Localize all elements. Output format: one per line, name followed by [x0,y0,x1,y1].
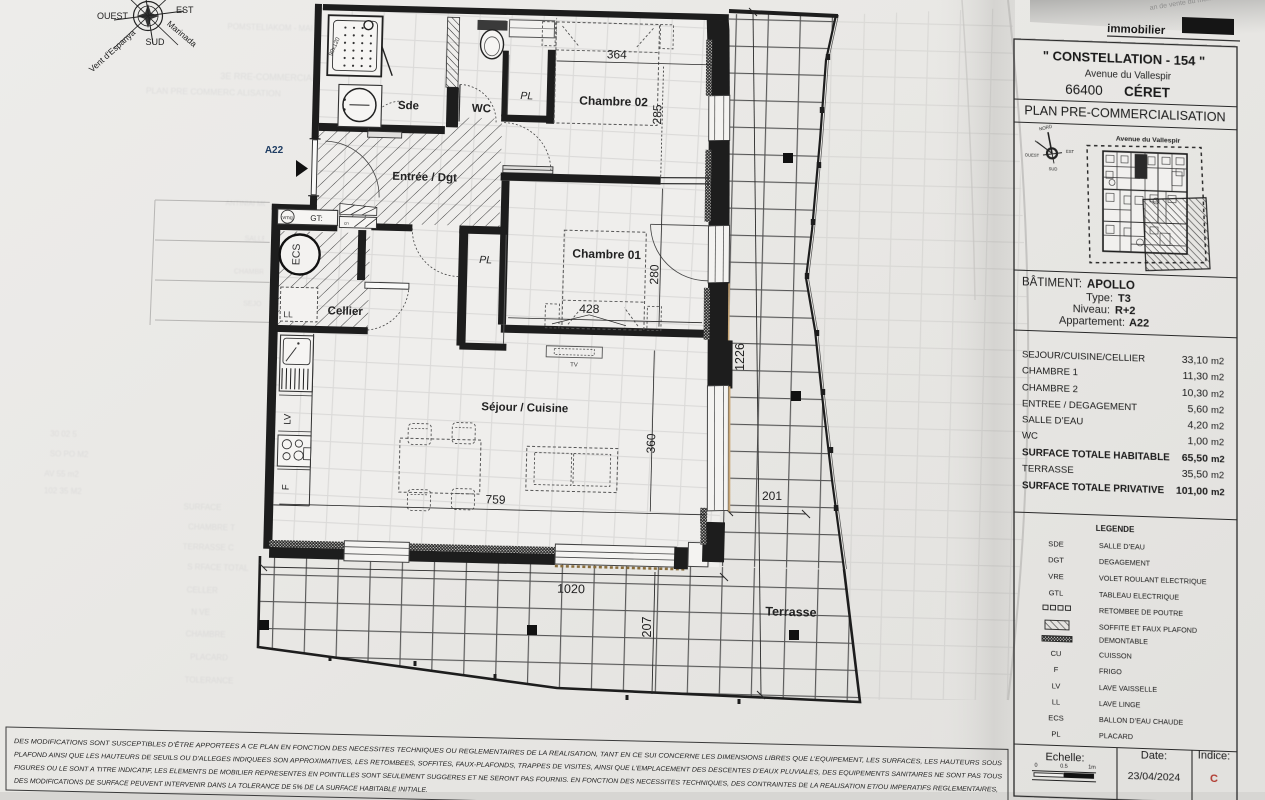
svg-text:T3: T3 [1118,293,1131,305]
svg-text:Sde: Sde [398,100,419,113]
svg-text:1226: 1226 [733,343,747,371]
svg-text:LEGENDE: LEGENDE [1096,524,1135,534]
svg-text:TOLERANCE: TOLERANCE [185,675,234,685]
svg-text:CELLER: CELLER [187,585,219,595]
svg-text:SALLE D’EAU: SALLE D’EAU [1022,414,1083,427]
svg-text:LL: LL [283,309,293,319]
svg-text:Indice:: Indice: [1198,749,1230,762]
svg-text:30 02 5: 30 02 5 [50,429,77,439]
svg-text:SO PO M2: SO PO M2 [50,449,89,459]
svg-text:364: 364 [607,47,628,62]
svg-text:CÉRET: CÉRET [1124,84,1170,101]
svg-text:WC: WC [1022,430,1038,442]
svg-text:SUD: SUD [145,37,165,47]
svg-text:Chambre 01: Chambre 01 [572,246,641,262]
svg-text:DEMONTABLE: DEMONTABLE [1099,635,1148,646]
svg-text:SALLE D’EAU: SALLE D’EAU [1099,541,1145,552]
svg-text:immobilier: immobilier [1107,23,1166,37]
svg-text:23/04/2024: 23/04/2024 [1128,770,1181,784]
svg-text:F: F [281,484,292,490]
svg-text:33,10: 33,10 [1182,354,1208,367]
svg-text:TERRASSE: TERRASSE [1022,463,1074,476]
svg-text:428: 428 [579,302,600,317]
svg-text:GT:: GT: [310,214,323,223]
svg-text:FRIGO: FRIGO [1099,666,1122,676]
svg-text:m2: m2 [1211,454,1225,465]
svg-text:LV: LV [1052,681,1061,690]
svg-text:A22: A22 [1129,317,1149,330]
svg-text:PL: PL [479,254,492,266]
svg-text:PLACARD: PLACARD [1099,731,1133,741]
svg-text:N VE: N VE [191,607,210,616]
svg-text:0.5: 0.5 [1060,764,1068,770]
svg-text:Cellier: Cellier [327,305,363,318]
svg-text:PL: PL [1051,729,1060,738]
svg-text:Séjour / Cuisine: Séjour / Cuisine [481,401,568,415]
svg-text:R+2: R+2 [1115,305,1135,318]
svg-text:Echelle:: Echelle: [1045,751,1084,764]
svg-text:ECS: ECS [1048,713,1063,723]
svg-text:CHAMBRE T: CHAMBRE T [188,522,235,532]
svg-text:OUEST: OUEST [1025,152,1040,158]
svg-text:DEGAGEMENT: DEGAGEMENT [1099,557,1151,568]
svg-text:EST: EST [176,5,194,15]
svg-text:102 35 M2: 102 35 M2 [44,486,83,496]
svg-text:vmq: vmq [282,215,293,221]
svg-text:VRE: VRE [1048,572,1063,582]
svg-text:APOLLO: APOLLO [1087,279,1135,293]
svg-text:1m: 1m [1088,765,1096,771]
svg-text:PL: PL [520,90,533,102]
svg-text:TERRASSE C: TERRASSE C [183,542,235,552]
svg-text:A22: A22 [265,145,284,156]
svg-text:CHAMBRE 1: CHAMBRE 1 [1022,365,1078,378]
svg-text:Terrasse: Terrasse [765,604,817,619]
svg-text:360: 360 [644,433,659,454]
svg-text:m2: m2 [1211,372,1224,383]
svg-text:m2: m2 [1211,421,1224,432]
svg-text:280: 280 [647,264,662,285]
svg-text:65,50: 65,50 [1182,452,1208,465]
svg-text:Date:: Date: [1141,749,1167,762]
svg-text:SDE: SDE [1048,539,1063,549]
svg-text:OUEST: OUEST [97,11,129,21]
svg-text:DGT: DGT [1048,555,1064,565]
svg-text:SURFACE: SURFACE [183,502,221,512]
svg-text:201: 201 [762,489,782,503]
svg-text:m2: m2 [1211,405,1224,416]
svg-text:S RFACE TOTAL: S RFACE TOTAL [187,562,249,572]
svg-text:cn: cn [344,221,349,226]
svg-text:Entrée / Dgt: Entrée / Dgt [392,171,457,185]
svg-text:CUISSON: CUISSON [1099,650,1132,660]
svg-text:11,30: 11,30 [1183,370,1209,383]
svg-text:BÂTIMENT:: BÂTIMENT: [1022,275,1082,290]
svg-text:EST: EST [1066,149,1075,154]
svg-text:10,30: 10,30 [1182,387,1208,400]
svg-text:285: 285 [650,104,665,125]
svg-text:207: 207 [640,617,654,638]
svg-text:CHAMBRE 2: CHAMBRE 2 [1022,382,1078,395]
svg-text:Type:: Type: [1086,292,1113,305]
svg-text:m2: m2 [1211,356,1224,367]
svg-text:GTL: GTL [1049,588,1064,598]
svg-text:m2: m2 [1211,389,1224,400]
svg-text:SUD: SUD [1049,166,1058,171]
svg-text:LAVE LINGE: LAVE LINGE [1099,699,1141,709]
svg-text:ECS: ECS [290,243,303,265]
svg-text:AV 55 m2: AV 55 m2 [44,469,79,479]
svg-text:35,50: 35,50 [1182,468,1208,481]
svg-text:TV: TV [570,362,578,368]
svg-text:CU: CU [1051,649,1062,658]
svg-text:m2: m2 [1211,487,1225,498]
svg-text:CHAMBRE: CHAMBRE [186,629,226,639]
svg-text:5,60: 5,60 [1188,403,1209,416]
svg-text:Appartement:: Appartement: [1059,315,1125,329]
svg-text:C: C [1210,773,1218,785]
svg-text:F: F [1054,665,1059,674]
svg-text:m2: m2 [1211,437,1224,448]
svg-text:WC: WC [472,103,491,115]
svg-text:LV: LV [282,413,293,425]
svg-text:1020: 1020 [557,582,585,597]
svg-text:1,00: 1,00 [1188,435,1209,448]
svg-text:m2: m2 [1211,470,1224,481]
svg-text:Chambre 02: Chambre 02 [579,94,648,110]
svg-text:759: 759 [485,492,506,507]
svg-text:4,20: 4,20 [1188,419,1209,432]
svg-text:66400: 66400 [1065,82,1103,98]
svg-text:101,00: 101,00 [1176,485,1208,498]
svg-text:PLACARD: PLACARD [190,652,228,662]
svg-text:LL: LL [1052,697,1060,706]
svg-text:0: 0 [1034,763,1037,769]
